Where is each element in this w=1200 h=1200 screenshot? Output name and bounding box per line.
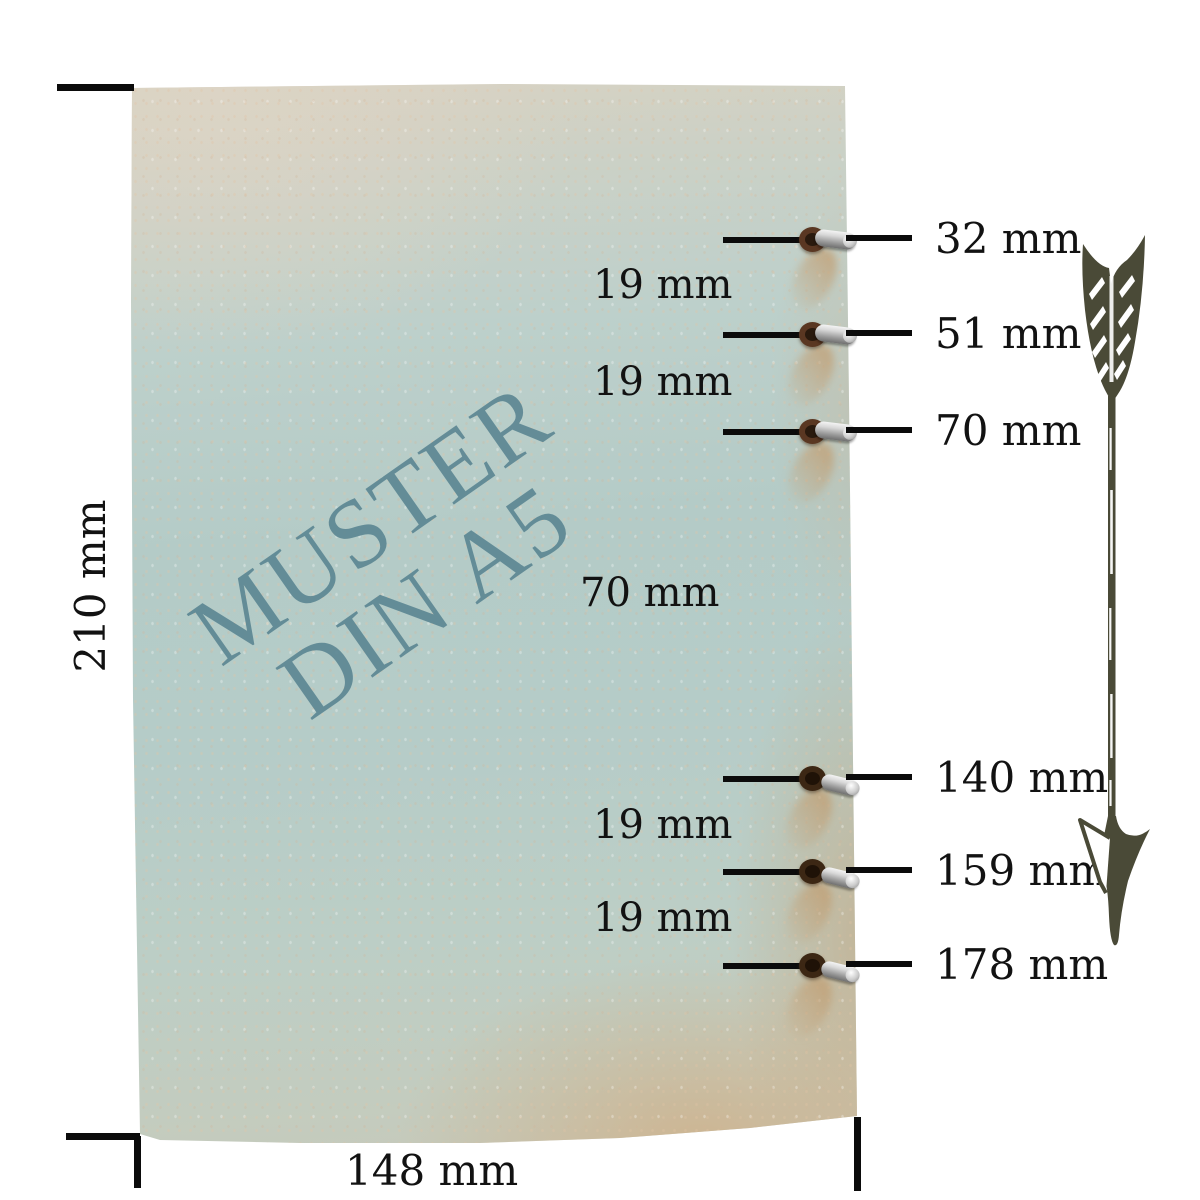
dimension-line <box>846 235 912 241</box>
gap-label: 19 mm <box>593 263 732 307</box>
dimension-tick-bottom-left-vertical <box>134 1136 141 1188</box>
dimension-line <box>723 963 806 969</box>
dimension-tick-bottom-left <box>66 1133 140 1140</box>
gap-label: 19 mm <box>593 360 732 404</box>
gap-label: 70 mm <box>580 571 719 615</box>
dimension-tick-bottom-right-vertical <box>854 1117 861 1191</box>
dimension-line <box>846 427 912 433</box>
dimension-line <box>846 330 912 336</box>
dimension-line <box>723 237 806 243</box>
dimension-line <box>723 332 806 338</box>
dimension-line <box>846 774 912 780</box>
width-dimension-label: 148 mm <box>345 1146 495 1195</box>
dimension-line <box>723 869 806 875</box>
height-dimension-label: 210 mm <box>66 486 110 686</box>
dimension-line <box>723 776 806 782</box>
hole-position-label: 51 mm <box>935 309 1081 359</box>
down-arrow-icon <box>1075 232 1159 952</box>
paper-sample: MUSTER DIN A5 <box>130 84 860 1146</box>
dimension-line <box>846 867 912 873</box>
hole-position-label: 32 mm <box>935 214 1081 264</box>
dimension-tick-top-left <box>57 84 134 91</box>
hole-position-label: 70 mm <box>935 406 1081 456</box>
dimension-line <box>723 429 806 435</box>
dimension-line <box>846 961 912 967</box>
gap-label: 19 mm <box>593 896 732 940</box>
gap-label: 19 mm <box>593 803 732 847</box>
diagram-canvas: MUSTER DIN A5 210 mm 148 mm 32 mm 51 mm … <box>0 0 1200 1200</box>
